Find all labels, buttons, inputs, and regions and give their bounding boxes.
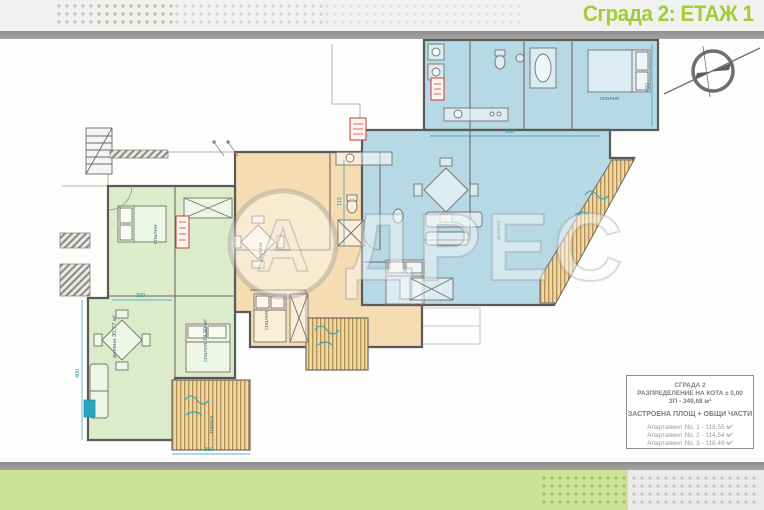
agency-watermark: А ДРЕС xyxy=(230,191,627,301)
planter xyxy=(84,400,95,417)
stamp-apartment-1 xyxy=(176,216,189,248)
bottom-divider-bar xyxy=(0,462,764,470)
watermark-letter-a: А xyxy=(256,204,309,287)
dim-number: 400 xyxy=(75,369,81,378)
apartment-2-terrace xyxy=(306,318,368,370)
legend-built-area: ЗП - 349,68 м² xyxy=(627,398,753,406)
room-label: спалня 13,30 м² xyxy=(203,319,209,362)
room-label: спалня xyxy=(153,225,159,244)
room-label: спалня xyxy=(264,311,270,330)
legend-apartment-2: Апартамент No. 2 - 114,54 м² xyxy=(627,432,753,440)
dim-number: 300 xyxy=(136,293,145,299)
room-label: спалня xyxy=(600,96,619,102)
room-label: тераса xyxy=(209,415,215,434)
legend-building: СГРАДА 2 xyxy=(627,382,753,390)
footer-dots-gray xyxy=(630,474,760,508)
legend-distribution: РАЗПРЕДЕЛЕНИЕ НА КОТА ± 0,00 xyxy=(627,390,753,398)
staircase xyxy=(86,128,112,174)
compass-icon xyxy=(664,46,760,97)
legend-apartment-3: Апартамент No. 3 - 118,49 м² xyxy=(627,440,753,448)
stamp-apartment-2 xyxy=(350,118,366,140)
footer-dots-green xyxy=(540,474,630,508)
apartment-1-terrace xyxy=(172,380,250,450)
dim-number: 300 xyxy=(204,447,213,453)
watermark-text: ДРЕС xyxy=(345,194,627,301)
legend-section-title: ЗАСТРОЕНА ПЛОЩ + ОБЩИ ЧАСТИ xyxy=(627,411,753,419)
dim-number: 450 xyxy=(645,83,651,92)
room-label: дневна 30,77 м² xyxy=(112,315,118,358)
stamp-apartment-3 xyxy=(431,78,444,100)
legend-box: СГРАДА 2 РАЗПРЕДЕЛЕНИЕ НА КОТА ± 0,00 ЗП… xyxy=(626,375,754,449)
legend-apartment-1: Апартамент No. 1 - 119,55 м² xyxy=(627,424,753,432)
dim-number: 368 xyxy=(505,129,514,135)
dim-number: 112 xyxy=(337,197,343,206)
